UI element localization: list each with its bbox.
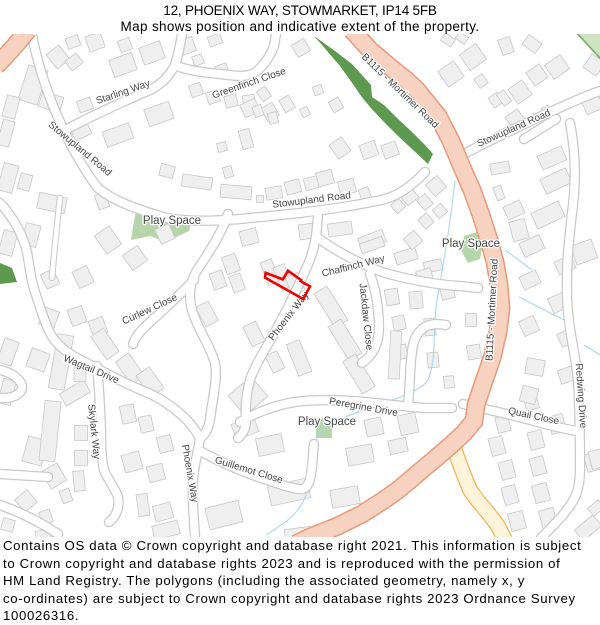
svg-text:Play Space: Play Space — [298, 416, 356, 428]
svg-text:Play Space: Play Space — [442, 238, 500, 250]
svg-text:Play Space: Play Space — [143, 215, 201, 227]
